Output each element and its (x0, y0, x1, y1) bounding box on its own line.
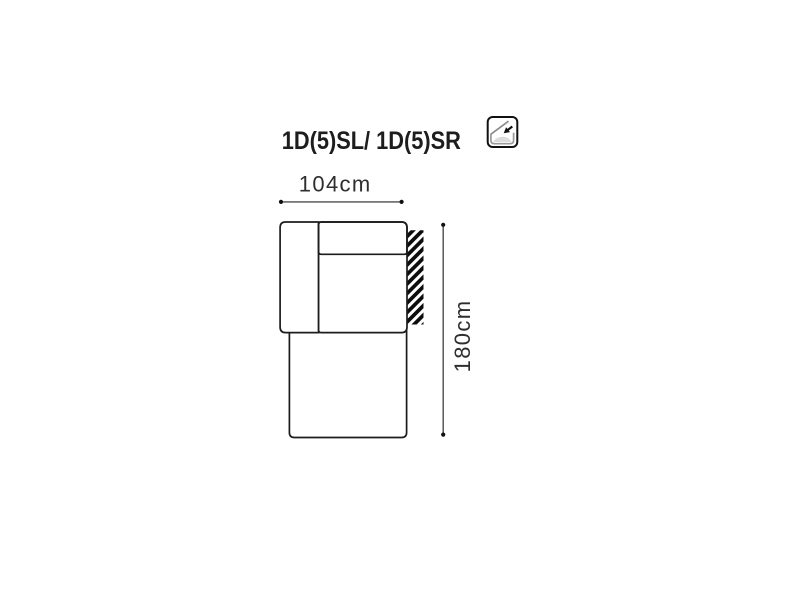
svg-text:104cm: 104cm (299, 172, 372, 197)
svg-text:1D(5)SL/ 1D(5)SR: 1D(5)SL/ 1D(5)SR (282, 127, 461, 155)
svg-text:180cm: 180cm (450, 300, 475, 373)
